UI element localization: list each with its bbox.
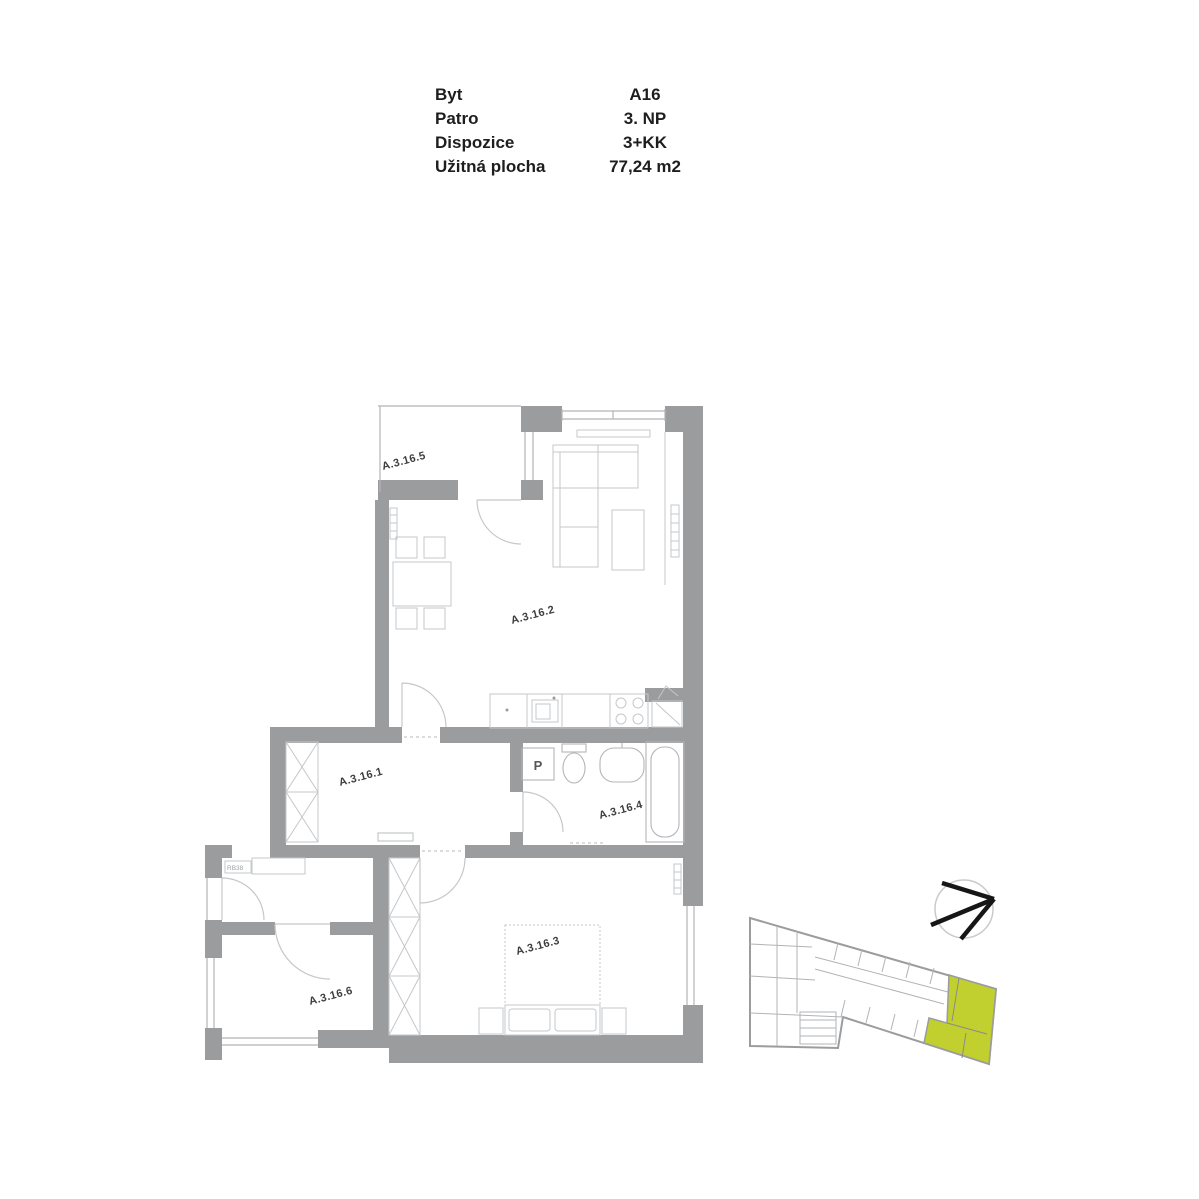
door-room [275, 924, 330, 979]
sofa [553, 445, 638, 567]
door-bathroom [523, 792, 563, 832]
toilet [562, 744, 586, 783]
radiator [674, 864, 681, 894]
floor-plan: A.3.16.5 A.3.16.2 A.3.16.1 A.3.16.4 A.3.… [205, 406, 703, 1063]
kitchen-counter [490, 694, 648, 728]
living-room-furniture [390, 430, 682, 728]
floor-plan-canvas: A.3.16.5 A.3.16.2 A.3.16.1 A.3.16.4 A.3.… [0, 0, 1199, 1199]
site-plan [750, 918, 996, 1064]
door-bedroom [420, 858, 465, 903]
room-label-living: A.3.16.2 [510, 604, 556, 627]
north-arrow [931, 880, 994, 939]
entry-door-label: RB38 [227, 865, 244, 872]
washing-machine-label: P [534, 758, 543, 773]
coffee-table [612, 510, 644, 570]
room-label-hallway: A.3.16.1 [338, 766, 384, 789]
stove [616, 698, 643, 724]
door-entry [222, 878, 264, 920]
room-label-bedroom: A.3.16.3 [515, 935, 561, 958]
door-terrace [477, 500, 521, 544]
window-shelf [577, 430, 650, 437]
room-label-bathroom: A.3.16.4 [598, 799, 645, 822]
windows [207, 406, 694, 1045]
hallway-furniture [286, 742, 318, 842]
radiator [671, 505, 679, 557]
nightstand [479, 1008, 503, 1034]
room-label-terrace: A.3.16.5 [381, 450, 427, 473]
door-living [402, 683, 446, 727]
wardrobe [286, 742, 318, 842]
sink [600, 743, 644, 782]
walls [205, 406, 703, 1063]
nightstand [602, 1008, 626, 1034]
bathtub [646, 742, 684, 842]
room-label-room: A.3.16.6 [308, 985, 354, 1008]
bathroom-fixtures [522, 742, 684, 842]
radiator [390, 508, 397, 539]
wardrobe [389, 858, 420, 1035]
dining-table [393, 537, 451, 629]
